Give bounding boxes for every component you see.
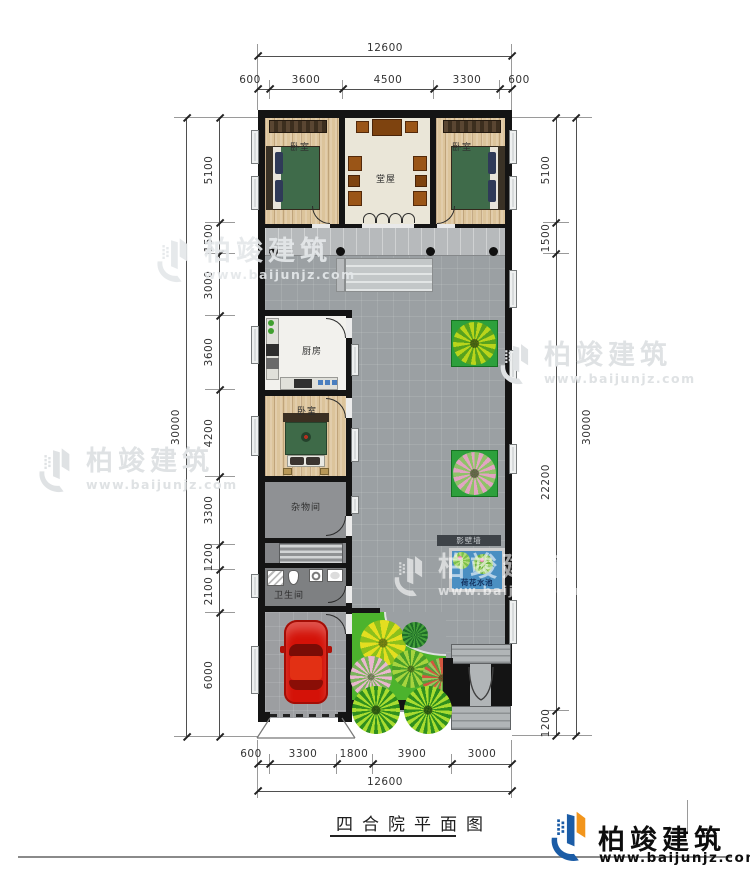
room-label-kitchen: 厨房 (302, 344, 322, 357)
dim-label: 600 (508, 74, 530, 86)
room-label-storage: 杂物间 (291, 500, 321, 513)
courtyard-steps (345, 258, 433, 292)
dim-label: 30000 (170, 409, 182, 445)
drawing-title: 四合院平面图 (336, 810, 492, 835)
wall-stub (352, 608, 380, 613)
column (336, 247, 345, 256)
door-gap (346, 398, 352, 418)
window (509, 350, 517, 380)
kitchen-appliance (266, 358, 279, 369)
dim-label: 1200 (540, 709, 552, 738)
dim-right-chain-line (556, 118, 557, 736)
shower (267, 570, 284, 586)
hall-chair (413, 156, 427, 171)
wall-hall-east (430, 118, 436, 224)
pillow (275, 152, 283, 174)
street-tree (352, 686, 400, 734)
watermark-text: 柏竣建筑 www.baijunjz.com (544, 340, 696, 386)
hall-chair (413, 191, 427, 206)
dim-bottom-total-line (258, 791, 512, 792)
room-label-bedroom-ne: 卧室 (452, 140, 472, 153)
pillow (488, 152, 496, 174)
dim-label: 3600 (292, 74, 321, 86)
plant-pot (268, 328, 274, 334)
car-rear-window (289, 680, 323, 690)
veranda (265, 228, 505, 256)
folding-door-leaf (363, 213, 376, 223)
door-gap (346, 586, 352, 603)
hall-chair (356, 121, 369, 133)
wall-left (258, 110, 265, 722)
courtyard-tree (453, 322, 496, 365)
dim-label: 3300 (289, 748, 318, 760)
staircase (279, 543, 343, 565)
gate-pier-left (447, 664, 470, 706)
dim-label: 3000 (468, 748, 497, 760)
courtyard-tree-pink (453, 452, 496, 495)
bed-headboard (266, 146, 273, 210)
window (351, 496, 359, 514)
dim-label: 30000 (581, 409, 593, 445)
dim-label: 3300 (203, 496, 215, 525)
wardrobe (443, 120, 501, 133)
folding-door-leaf (376, 213, 389, 223)
gate-steps-bottom (451, 706, 511, 730)
nightstand (320, 468, 329, 475)
window (251, 646, 259, 694)
company-logo-icon (541, 804, 595, 866)
car-roof (290, 656, 322, 680)
car-mirror (280, 646, 285, 653)
dim-label: 1500 (540, 224, 552, 253)
dim-label: 12600 (367, 776, 403, 788)
burner (294, 379, 312, 388)
dim-label: 3300 (453, 74, 482, 86)
car-mirror (327, 646, 332, 653)
dim-right-total-line (576, 118, 577, 736)
window (509, 176, 517, 210)
dim-top-total-line (258, 56, 512, 57)
extension-line (512, 735, 592, 736)
dim-label: 1200 (203, 543, 215, 572)
dim-label: 4500 (374, 74, 403, 86)
plant-pot (268, 320, 274, 326)
dim-label: 5100 (540, 156, 552, 185)
sink (327, 569, 343, 582)
wardrobe (269, 120, 327, 133)
street-tree (404, 686, 452, 734)
pond-label: 荷花水池 (452, 577, 502, 588)
pillow (488, 180, 496, 202)
column (489, 247, 498, 256)
lotus-plant (453, 552, 470, 569)
window (251, 130, 259, 164)
dim-left-chain-line (219, 118, 220, 737)
wall-hall-west (339, 118, 345, 224)
column (269, 247, 278, 256)
hall-chair (405, 121, 418, 133)
dim-label: 600 (240, 748, 262, 760)
watermark: 柏竣建筑 www.baijunjz.com (30, 442, 238, 496)
dim-label: 1500 (203, 224, 215, 253)
kitchen-item (318, 380, 323, 385)
watermark-brand: 柏竣建筑 (86, 446, 238, 477)
window (251, 416, 259, 456)
watermark-url: www.baijunjz.com (544, 371, 696, 386)
pillow (306, 457, 320, 465)
washer (309, 569, 323, 582)
car-windshield (289, 644, 323, 656)
title-underline (330, 835, 456, 837)
dim-label: 3600 (203, 338, 215, 367)
screen-wall-label: 影壁墙 (456, 535, 482, 546)
column (426, 247, 435, 256)
gate-steps-top (451, 644, 511, 664)
dim-left-total-line (186, 118, 187, 737)
kitchen-item (325, 380, 330, 385)
gate-pier-right (491, 664, 512, 706)
dim-label: 5100 (203, 156, 215, 185)
garden-palm-dark (402, 622, 428, 648)
extension-line (512, 117, 592, 118)
window (351, 428, 359, 462)
folding-door-leaf (389, 213, 402, 223)
dim-label: 3000 (203, 271, 215, 300)
watermark-brand: 柏竣建筑 (544, 340, 696, 371)
dim-tick (508, 760, 516, 768)
hall-chair (348, 191, 362, 206)
dim-label: 600 (239, 74, 261, 86)
hall-table (372, 119, 402, 136)
dim-label: 12600 (367, 42, 403, 54)
bed (451, 146, 505, 210)
dim-label: 22200 (540, 464, 552, 500)
window (251, 176, 259, 210)
lotus-flower (458, 556, 462, 560)
watermark-text: 柏竣建筑 www.baijunjz.com (86, 446, 238, 492)
door-gap (346, 516, 352, 536)
hall-chair (348, 156, 362, 171)
steps-side-tab (336, 258, 345, 292)
pillow (290, 457, 304, 465)
window (509, 600, 517, 644)
watermark: 柏竣建筑 www.baijunjz.com (492, 338, 696, 388)
bed-headboard (498, 146, 505, 210)
room-label-bathroom: 卫生间 (274, 588, 304, 601)
brand-logo-icon (30, 442, 78, 496)
window (351, 344, 359, 376)
window (509, 270, 517, 308)
dim-top-chain-line (258, 89, 512, 90)
room-label-hall: 堂屋 (376, 172, 396, 185)
floor-plan-drawing: 12600 600 3600 4500 3300 600 600 3300 18… (0, 0, 750, 885)
wall-top (258, 110, 512, 118)
lotus-flower (480, 558, 484, 562)
dim-label: 4200 (203, 419, 215, 448)
stove (266, 344, 279, 356)
company-logo-url: www.baijunjz.com (599, 850, 750, 866)
dim-tick (508, 787, 516, 795)
room-label-bedroom-w: 卧室 (297, 404, 317, 417)
bed-emblem (301, 432, 311, 442)
nightstand (283, 468, 292, 475)
window (251, 326, 259, 364)
pillow (275, 180, 283, 202)
dim-label: 6000 (203, 661, 215, 690)
kitchen-item (332, 380, 337, 385)
dim-label: 1800 (340, 748, 369, 760)
room-label-bedroom-nw: 卧室 (290, 140, 310, 153)
window (509, 444, 517, 474)
hall-side-table (348, 175, 360, 187)
dim-bottom-chain-line (258, 764, 512, 765)
dim-label: 2100 (203, 577, 215, 606)
brand-logo-icon (148, 232, 196, 286)
gate-door-arcs (468, 666, 494, 704)
door-gap (346, 318, 352, 338)
window (509, 130, 517, 164)
lotus-plant (473, 554, 493, 574)
driveway-apron (254, 716, 358, 740)
dim-label: 3900 (398, 748, 427, 760)
window (251, 574, 259, 598)
hall-side-table (415, 175, 427, 187)
screen-wall: 影壁墙 (437, 535, 501, 546)
dim-tick (508, 52, 516, 60)
folding-door-leaf (402, 213, 415, 223)
